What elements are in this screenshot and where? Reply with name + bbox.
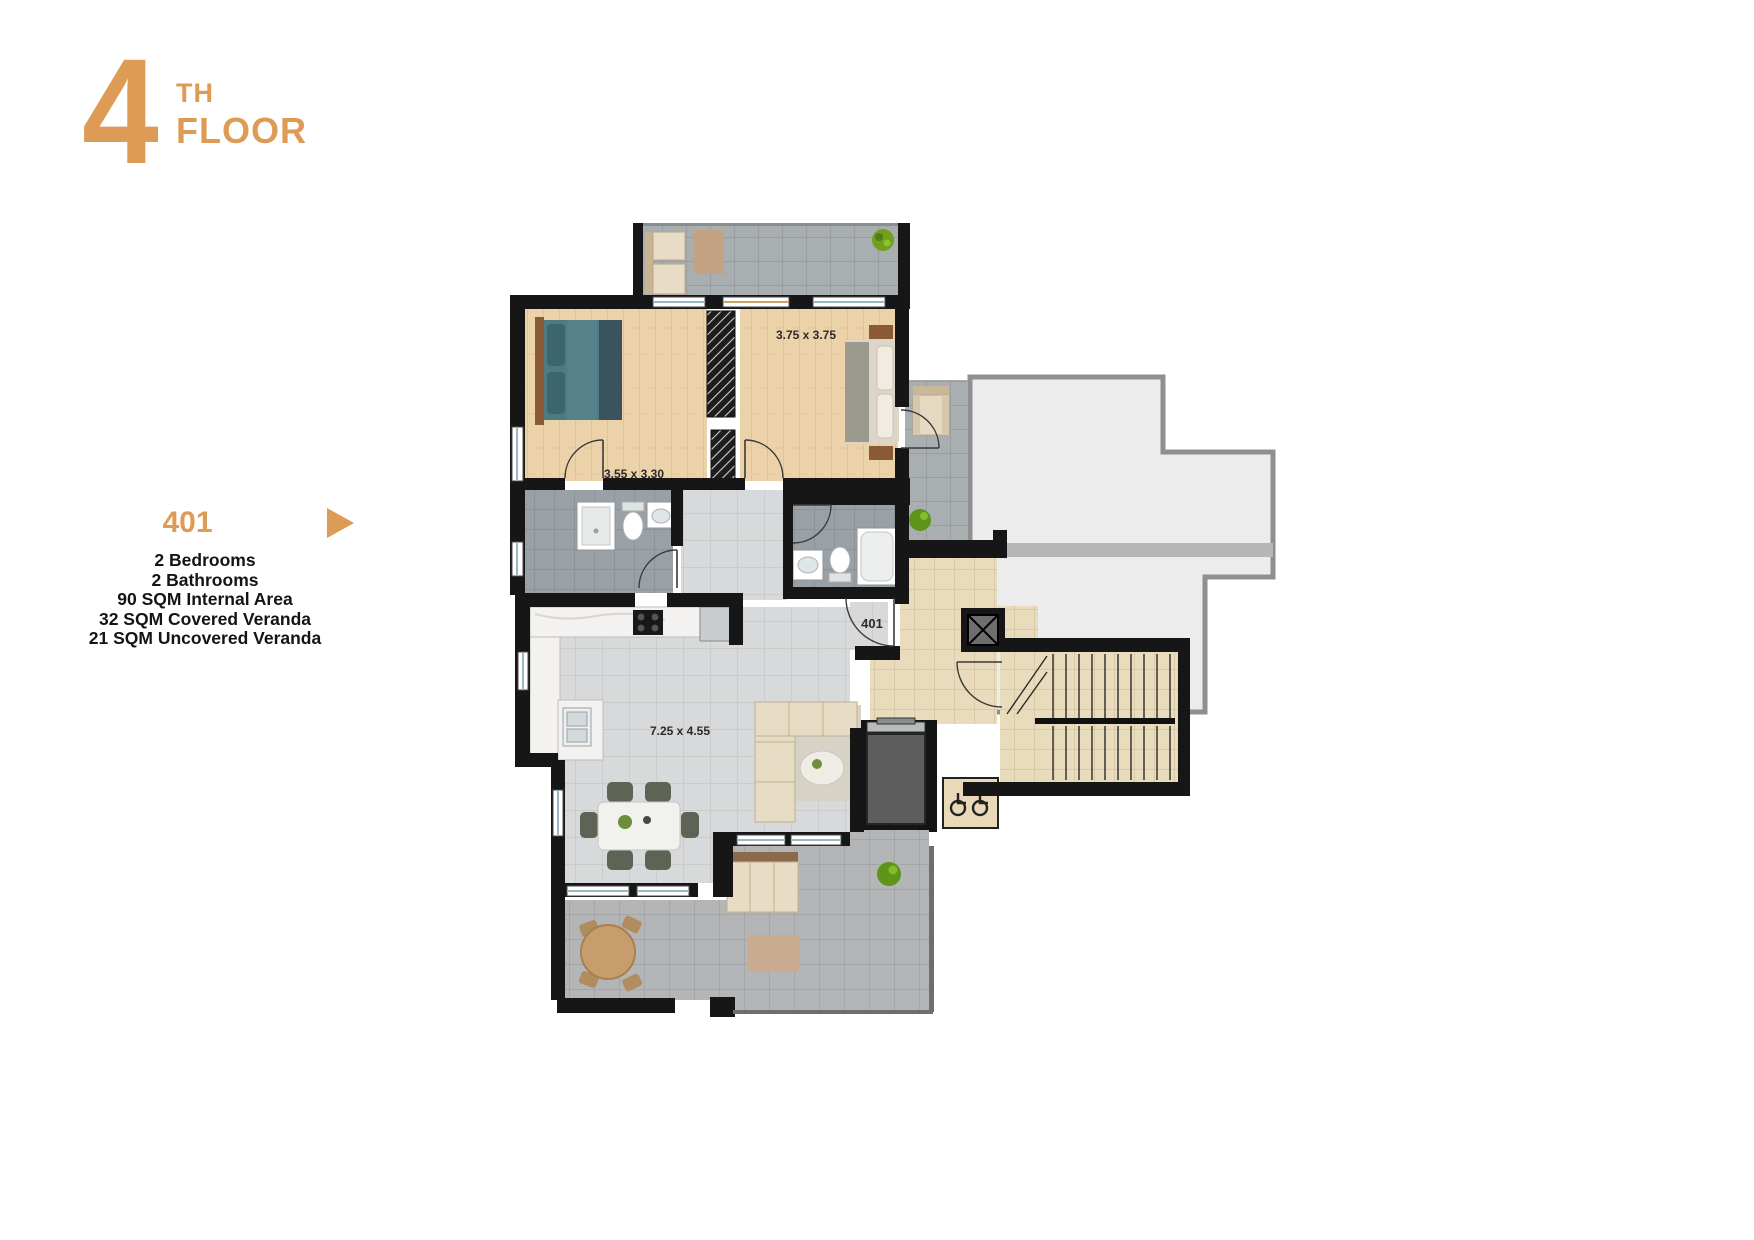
bedroom-1: 3.55 x 3.30 — [525, 309, 707, 481]
shower-icon — [577, 502, 615, 550]
bedroom-closet — [707, 311, 735, 480]
hallway-floor — [681, 490, 787, 600]
terrace-plant-icon — [872, 229, 894, 251]
sink-icon — [793, 550, 823, 580]
bed-icon — [535, 317, 622, 425]
balcony-plant-icon — [909, 509, 931, 531]
top-terrace — [633, 223, 910, 305]
feature-bedrooms: 2 Bedrooms — [55, 551, 355, 571]
bedroom-2: 3.75 x 3.75 — [740, 309, 899, 481]
unit-features: 2 Bedrooms 2 Bathrooms 90 SQM Internal A… — [55, 551, 355, 649]
shaft-icon — [961, 608, 1005, 652]
fridge-icon — [700, 607, 730, 641]
elevator — [855, 718, 937, 832]
feature-covered-veranda: 32 SQM Covered Veranda — [55, 610, 355, 630]
terrace-rug-icon — [694, 230, 724, 274]
feature-uncovered-veranda: 21 SQM Uncovered Veranda — [55, 629, 355, 649]
veranda-mat-icon — [748, 935, 800, 971]
bedroom-balcony — [900, 380, 970, 554]
veranda-plant-icon — [877, 862, 901, 886]
feature-internal-area: 90 SQM Internal Area — [55, 590, 355, 610]
toilet-icon — [622, 502, 644, 540]
floor-plan-page: { "header": { "floor_number": "4", "ordi… — [0, 0, 1754, 1240]
entrance-unit-label: 401 — [861, 616, 883, 631]
balcony-armchair-icon — [913, 386, 949, 435]
floor-ordinal-suffix: TH — [176, 78, 214, 109]
unit-number: 401 — [125, 506, 250, 540]
bathroom-1 — [525, 490, 675, 593]
living-room-dimension: 7.25 x 4.55 — [650, 724, 710, 738]
sink-icon — [647, 502, 675, 528]
bedroom-2-dimension: 3.75 x 3.75 — [776, 328, 836, 342]
floor-number: 4 — [82, 36, 159, 186]
toilet-icon — [829, 547, 851, 582]
shower-tub-icon — [857, 528, 897, 585]
floor-word: FLOOR — [176, 110, 307, 152]
unit-arrow-icon[interactable] — [327, 508, 354, 538]
kitchen-sink-icon — [563, 708, 591, 746]
coffee-table-icon — [800, 751, 844, 785]
bathroom-2 — [787, 505, 899, 587]
stairwell — [1000, 652, 1178, 782]
feature-bathrooms: 2 Bathrooms — [55, 571, 355, 591]
floor-plan-svg: 3.55 x 3.30 3.75 x 3.75 — [495, 190, 1295, 1020]
outdoor-sofa-icon — [727, 852, 798, 912]
bed-icon — [845, 325, 899, 460]
